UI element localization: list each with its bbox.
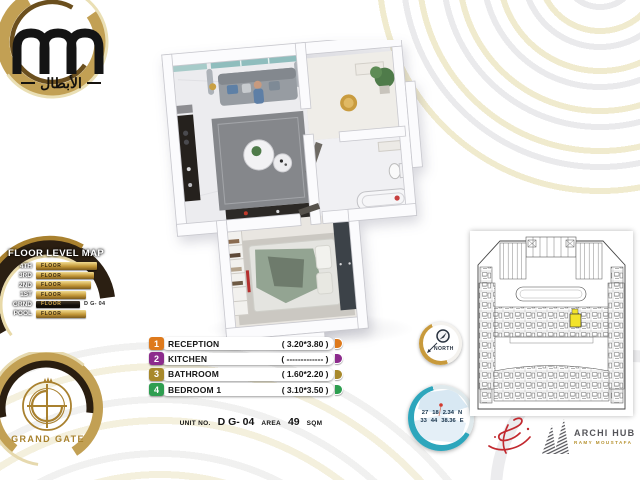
highlighted-unit [570, 314, 581, 327]
archi-hub-logo: ARCHI HUB RAMY MOUSTAFA [541, 419, 635, 455]
legend-pill: BATHROOM ( 1.60*2.20 ) [161, 368, 334, 381]
pillow [315, 245, 332, 269]
grand-gate-logo: GRAND GATE [0, 352, 130, 480]
master-plan-drawing [470, 231, 633, 416]
pillow [268, 81, 280, 91]
chevron-right-icon [335, 369, 343, 380]
pillow [227, 85, 239, 95]
room-legend: 1 RECEPTION ( 3.20*3.80 ) 2 KITCHEN ( --… [149, 337, 343, 399]
room-floor [303, 50, 406, 140]
floor-row-4th: 4TH FLOOR [6, 262, 105, 270]
floor-row-3rd: 3RD FLOOR [6, 272, 105, 280]
north-label: NORTH [434, 346, 454, 352]
pillow [242, 83, 252, 93]
unit-no-label: UNIT NO. [180, 420, 211, 427]
north-wing [500, 243, 526, 279]
room-number-badge: 4 [149, 383, 164, 396]
room-number-badge: 2 [149, 352, 164, 365]
latitude: 27 18 2.34 N [422, 410, 462, 416]
floor-bar: FLOOR [36, 262, 97, 270]
archi-hub-name: ARCHI HUB [574, 428, 635, 438]
floor-row-2nd: 2ND FLOOR [6, 281, 105, 289]
floor-bar: FLOOR [36, 272, 94, 280]
poster-canvas: الأبطال FLOOR LEVEL MAP 4TH FLOOR 3RD FL… [0, 0, 640, 480]
area-value: 49 [288, 416, 300, 428]
floor-plan-3d [158, 40, 430, 342]
legend-row-bedroom1: 4 BEDROOM 1 ( 3.10*3.50 ) [149, 383, 343, 396]
floor-row-grnd-highlighted: GRND FLOOR D G- 04 [6, 300, 105, 308]
floor-level-map-title: FLOOR LEVEL MAP [8, 248, 104, 259]
floor-row-pool: POOL FLOOR [6, 310, 105, 318]
coordinates-dial: 27 18 2.34 N 33 44 38.36 E [414, 389, 470, 445]
legend-row-bathroom: 3 BATHROOM ( 1.60*2.20 ) [149, 368, 343, 381]
east-units [608, 283, 624, 389]
area-unit: SQM [307, 420, 323, 427]
calligraphy-signature-icon [483, 410, 535, 460]
room-number-badge: 1 [149, 337, 164, 350]
room-number-badge: 3 [149, 368, 164, 381]
floor-bar: FLOOR [36, 291, 86, 299]
legend-pill: KITCHEN ( ------------- ) [161, 353, 334, 366]
north-compass: NORTH [419, 322, 462, 365]
archi-hub-subtitle: RAMY MOUSTAFA [574, 440, 635, 445]
pillow [316, 272, 333, 294]
floor-unit-number: D G- 04 [84, 301, 105, 307]
developer-logo: الأبطال [0, 0, 150, 120]
brand-arabic-name: الأبطال [40, 76, 82, 90]
master-plan [470, 231, 633, 416]
mid-units [495, 307, 608, 337]
unit-info: UNIT NO. D G- 04 AREA 49 SQM [156, 416, 346, 428]
south-units [494, 366, 609, 402]
floor-level-map: FLOOR LEVEL MAP 4TH FLOOR 3RD FLOOR 2ND … [0, 225, 160, 345]
chevron-right-icon [335, 338, 343, 349]
floor-bar-highlighted: FLOOR [36, 301, 80, 309]
legend-pill: RECEPTION ( 3.20*3.80 ) [161, 337, 334, 350]
corridor [510, 337, 593, 343]
legend-row-kitchen: 2 KITCHEN ( ------------- ) [149, 352, 343, 365]
compass-dial: NORTH [423, 325, 459, 361]
vanity [378, 141, 401, 152]
legend-row-reception: 1 RECEPTION ( 3.20*3.80 ) [149, 337, 343, 350]
west-units [479, 283, 495, 389]
divider [87, 82, 101, 84]
archi-hub-peaks-icon [541, 419, 569, 455]
gps-coordinates: 27 18 2.34 N 33 44 38.36 E [408, 385, 474, 451]
chevron-right-icon [335, 353, 343, 364]
compass-icon [423, 325, 459, 361]
north-wing [576, 243, 602, 279]
floor-bar: FLOOR [36, 281, 91, 289]
longitude: 33 44 38.36 E [420, 418, 463, 424]
unit-no-value: D G- 04 [218, 416, 255, 428]
floor-bar: FLOOR [36, 310, 86, 318]
grand-gate-name: GRAND GATE [0, 434, 96, 444]
floor-row-1st: 1ST FLOOR [6, 291, 105, 299]
arches-icon [10, 22, 110, 74]
chevron-right-icon [335, 384, 343, 395]
divider [21, 82, 35, 84]
pool [516, 287, 586, 301]
area-label: AREA [261, 420, 281, 427]
legend-pill: BEDROOM 1 ( 3.10*3.50 ) [161, 383, 334, 396]
